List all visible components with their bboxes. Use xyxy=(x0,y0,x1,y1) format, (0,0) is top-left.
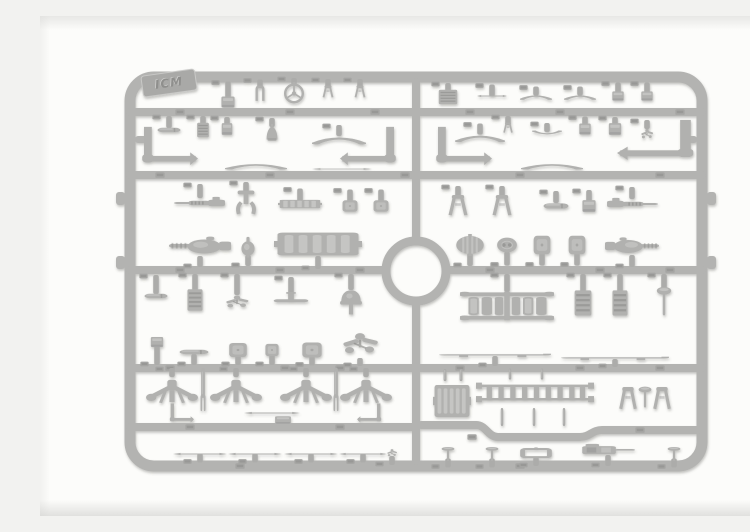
louver-panel xyxy=(612,290,627,315)
number-tab xyxy=(657,464,665,469)
number-tab xyxy=(275,267,284,273)
vent-grille-part xyxy=(439,90,457,104)
number-tab xyxy=(231,263,239,268)
number-tab xyxy=(630,119,638,124)
steering-wheel xyxy=(285,82,303,102)
shift-lever-part xyxy=(657,287,671,316)
junction-box xyxy=(222,123,233,135)
tank-cylinder-part xyxy=(544,203,569,208)
louver-panel xyxy=(197,123,209,137)
bent-pipe-part xyxy=(436,127,492,165)
bent-pipe xyxy=(617,120,693,160)
number-tab xyxy=(635,427,644,433)
tee-valve xyxy=(668,447,681,461)
muffler-part xyxy=(180,350,209,354)
fender-arm xyxy=(494,195,510,215)
number-tab xyxy=(139,274,147,279)
pump-body xyxy=(144,294,167,298)
number-tab xyxy=(343,78,351,83)
junction-box-part xyxy=(222,123,233,135)
frame-bracket-part xyxy=(523,447,550,457)
number-tab xyxy=(560,262,568,267)
number-tab xyxy=(490,262,498,267)
linkage-cluster xyxy=(226,296,249,308)
gun-breech-part xyxy=(582,444,635,454)
cylinder-device xyxy=(157,128,180,132)
hatch-disc-part xyxy=(241,237,254,258)
number-tab xyxy=(431,464,439,469)
gate xyxy=(501,408,504,426)
number-tab xyxy=(243,78,251,83)
small-block-part xyxy=(612,91,623,100)
number-tab xyxy=(294,459,302,464)
clamp-fork xyxy=(655,387,670,409)
fork-post xyxy=(200,368,205,411)
hatch-plate xyxy=(229,343,247,357)
sprue-gate xyxy=(192,274,198,291)
armor-plate xyxy=(569,236,586,254)
sprue-gate xyxy=(489,85,495,97)
grip-cluster-part xyxy=(387,449,397,456)
muffler xyxy=(180,350,209,354)
number-tab xyxy=(591,463,599,468)
sprue-gate xyxy=(661,274,667,289)
sprue-gate xyxy=(191,354,197,365)
sprue-gate xyxy=(644,120,650,129)
number-tab xyxy=(295,362,303,367)
gate xyxy=(444,369,447,381)
number-tab xyxy=(322,124,330,129)
number-tab xyxy=(238,459,246,464)
number-tab xyxy=(183,459,191,464)
linkage-cluster-part xyxy=(226,296,249,308)
small-block xyxy=(612,91,623,100)
curved-brace xyxy=(520,96,553,100)
number-tab xyxy=(525,262,533,267)
sprue-gate xyxy=(629,187,635,199)
sprue-gate xyxy=(539,253,545,266)
number-tab xyxy=(539,190,547,195)
sprue-gate xyxy=(308,454,314,463)
ribbed-barrel-part xyxy=(456,234,484,256)
gun-turret xyxy=(169,237,231,254)
number-tab xyxy=(595,267,604,273)
louver-panel xyxy=(575,290,592,315)
sprue-gate xyxy=(612,359,618,367)
lever-fork-part xyxy=(356,86,365,98)
pedal-box-part xyxy=(275,416,291,424)
bent-pipe xyxy=(436,127,492,165)
number-tab xyxy=(221,362,229,367)
gun-breech xyxy=(582,444,635,454)
sprue-gate xyxy=(477,124,483,135)
number-tab xyxy=(647,273,655,278)
radiator-core xyxy=(458,292,556,321)
machine-gun xyxy=(174,197,225,206)
sprue: ICMICM xyxy=(116,69,716,469)
number-tab xyxy=(277,77,285,82)
number-tab xyxy=(235,463,244,469)
headlamp-bell-part xyxy=(267,124,278,141)
louver-panel xyxy=(187,289,202,311)
number-tab xyxy=(601,81,609,86)
suspension-arm xyxy=(146,380,198,403)
number-tab xyxy=(519,463,527,468)
tee-valve xyxy=(486,447,499,461)
spring-bow-part xyxy=(455,137,506,142)
suspension-arm-part xyxy=(146,380,198,403)
number-tab xyxy=(603,273,611,278)
machine-gun xyxy=(607,198,658,207)
sprue-gate xyxy=(533,87,539,96)
number-tab xyxy=(475,83,483,88)
number-tab xyxy=(475,464,483,469)
gate-part xyxy=(444,369,447,381)
gate xyxy=(533,408,536,426)
sprue-gate xyxy=(315,256,321,269)
stowage-box-part xyxy=(343,200,358,211)
number-tab xyxy=(598,116,606,121)
number-tab xyxy=(289,367,297,372)
gate-part xyxy=(509,369,512,380)
hatch-plate-part xyxy=(265,344,278,356)
sprue-gate xyxy=(336,125,342,136)
spring-bow xyxy=(455,137,506,142)
spring-bow-part xyxy=(311,139,366,145)
number-tab xyxy=(285,109,294,115)
headlamp-bell xyxy=(267,124,278,141)
sprue-gate xyxy=(389,456,395,465)
gate-part xyxy=(460,369,463,381)
louver-panel-part xyxy=(197,123,209,137)
tie-rod xyxy=(312,168,372,170)
sprue-gate xyxy=(166,116,172,128)
number-tab xyxy=(400,172,409,178)
tee-handle xyxy=(639,387,652,408)
step-bracket-part xyxy=(170,403,194,422)
u-clamp-part xyxy=(257,87,264,101)
edge-nub xyxy=(707,256,716,269)
access-ladder-part xyxy=(476,383,594,403)
leaf-spring xyxy=(520,165,583,170)
armor-plate xyxy=(534,236,551,254)
sprue-gate xyxy=(197,454,203,463)
suspension-arm-part xyxy=(210,380,262,403)
radiator-core-part xyxy=(458,292,556,321)
number-tab xyxy=(175,267,184,273)
small-block xyxy=(641,91,652,100)
sprue-gate xyxy=(153,275,159,294)
grip-cluster xyxy=(387,449,397,456)
fork-post-part xyxy=(200,368,205,411)
sprue-gate xyxy=(492,356,498,366)
step-bracket xyxy=(357,403,381,422)
bent-pipe xyxy=(340,127,396,165)
number-tab xyxy=(355,267,364,273)
machine-gun-part xyxy=(607,198,658,207)
sprue-gate xyxy=(303,368,309,377)
number-tab xyxy=(175,109,184,115)
gate-part xyxy=(501,408,504,426)
access-ladder xyxy=(476,383,594,403)
number-tab xyxy=(563,85,571,90)
bent-pipe-part xyxy=(340,127,396,165)
steering-wheel-part xyxy=(285,82,303,102)
gun-turret xyxy=(605,237,659,253)
twin-fork-part xyxy=(504,122,512,132)
sprue-gate xyxy=(348,274,354,290)
sprue-gate xyxy=(233,368,239,377)
number-tab xyxy=(255,362,263,367)
gate xyxy=(460,369,463,381)
hatch-plate xyxy=(302,343,321,358)
number-tab xyxy=(178,273,186,278)
step-bracket xyxy=(170,403,194,422)
small-block-part xyxy=(641,91,652,100)
number-tab xyxy=(568,115,576,120)
number-tab xyxy=(140,362,148,367)
leaf-spring-part xyxy=(520,165,583,170)
mg-mount-cluster-part xyxy=(343,333,379,353)
number-tab xyxy=(283,187,291,192)
sprue-gate xyxy=(544,123,550,132)
fork-post xyxy=(333,368,338,411)
mg-mount-cluster xyxy=(343,333,379,353)
vent-grille xyxy=(439,90,457,104)
number-tab xyxy=(334,273,342,278)
track-links xyxy=(278,200,322,208)
clamp-fork-part xyxy=(655,387,670,409)
firewall-grille xyxy=(433,385,471,417)
number-tab xyxy=(431,82,439,87)
number-tab xyxy=(615,264,623,269)
bent-pipe-part xyxy=(617,120,693,160)
number-tab xyxy=(183,183,191,188)
small-bracket-part xyxy=(221,97,234,108)
tie-rod-part xyxy=(312,168,372,170)
gearbox-part xyxy=(497,238,517,253)
gate-part xyxy=(541,369,544,380)
number-tab xyxy=(219,367,227,372)
sprue-gate xyxy=(154,345,160,365)
ribbed-barrel xyxy=(456,234,484,256)
linkage-cluster-part xyxy=(641,129,653,138)
tee-valve xyxy=(442,447,455,461)
air-funnel-part xyxy=(340,290,362,314)
number-tab xyxy=(598,364,606,369)
gun-turret-part xyxy=(605,237,659,253)
sprue-gate xyxy=(504,252,510,266)
center-ring xyxy=(386,241,446,301)
number-tab xyxy=(555,109,564,115)
gate-part xyxy=(563,408,566,426)
gate xyxy=(541,369,544,380)
small-block-part xyxy=(151,337,163,347)
number-tab xyxy=(655,172,664,178)
sprue-gate xyxy=(363,368,369,377)
suspension-arm xyxy=(210,380,262,403)
sprue-gate xyxy=(360,454,366,463)
number-tab xyxy=(615,186,623,191)
number-tab xyxy=(375,462,383,467)
curved-brace xyxy=(564,96,597,100)
sprue-scene: ICMICM xyxy=(40,16,750,516)
sprue-gate xyxy=(197,184,203,198)
machine-gun-part xyxy=(174,197,225,206)
small-block-part xyxy=(579,124,590,135)
bent-pipe-part xyxy=(142,127,198,165)
edge-nub xyxy=(116,192,125,205)
valve-block-part xyxy=(582,200,595,212)
number-tab xyxy=(575,365,584,371)
number-tab xyxy=(185,424,194,430)
valve-block xyxy=(582,200,595,212)
number-tab xyxy=(485,267,494,273)
stowage-box-part xyxy=(374,200,389,211)
pedal-box xyxy=(275,416,291,424)
fender-arm-part xyxy=(494,195,510,215)
small-block xyxy=(579,124,590,135)
number-tab xyxy=(530,122,538,127)
number-tab xyxy=(467,434,476,440)
edge-nub xyxy=(116,256,125,269)
number-tab xyxy=(515,172,524,178)
sprue-runner xyxy=(421,425,698,437)
number-tab xyxy=(370,109,379,115)
firewall-grille-part xyxy=(433,385,471,417)
hatch-plate-part xyxy=(229,343,247,357)
stowage-box xyxy=(374,200,389,211)
curved-brace-part xyxy=(564,96,597,100)
number-tab xyxy=(229,181,237,186)
axle-tee-part xyxy=(274,292,309,302)
sprue-gate xyxy=(234,274,240,295)
tee-handle-part xyxy=(639,387,652,408)
track-links-part xyxy=(278,200,322,208)
sprue-gate xyxy=(357,358,363,366)
lever-fork xyxy=(324,86,333,98)
gate xyxy=(563,408,566,426)
tank-cylinder xyxy=(544,203,569,208)
armor-plate-part xyxy=(569,236,586,254)
engine-block xyxy=(274,233,362,256)
gearbox xyxy=(497,238,517,253)
sprue-photo: Grey injection-moulded plastic model kit… xyxy=(40,16,750,516)
small-bracket xyxy=(221,97,234,108)
clamp-fork xyxy=(621,387,636,409)
suspension-arm xyxy=(280,380,332,403)
axle-tee xyxy=(274,292,309,302)
armor-plate-part xyxy=(534,236,551,254)
sprue-gate xyxy=(297,189,303,202)
gun-pedestal-part xyxy=(238,191,255,214)
number-tab xyxy=(349,367,357,372)
air-funnel xyxy=(340,290,362,314)
number-tab xyxy=(152,115,160,120)
u-clamp xyxy=(257,87,264,101)
suspension-arm-part xyxy=(280,380,332,403)
curved-brace-part xyxy=(520,96,553,100)
number-tab xyxy=(519,85,527,90)
number-tab xyxy=(210,116,218,121)
louver-panel-part xyxy=(612,290,627,315)
sprue-gate xyxy=(553,191,559,203)
number-tab xyxy=(630,81,638,86)
number-tab xyxy=(183,264,191,269)
small-block xyxy=(151,337,163,347)
suspension-arm-part xyxy=(340,380,392,403)
sprue-gate xyxy=(252,454,258,463)
louver-panel-part xyxy=(187,289,202,311)
number-tab xyxy=(491,115,499,120)
cylinder-device-part xyxy=(157,128,180,132)
stowage-box xyxy=(343,200,358,211)
number-tab xyxy=(177,362,185,367)
twin-fork xyxy=(504,122,512,132)
sprue-gate xyxy=(605,455,611,466)
frame-bracket xyxy=(523,447,550,457)
number-tab xyxy=(274,276,282,281)
sprue-gate xyxy=(574,253,580,266)
fork-post-part xyxy=(333,368,338,411)
number-tab xyxy=(220,273,228,278)
number-tab xyxy=(478,363,486,368)
sprue-gate xyxy=(580,274,586,292)
number-tab xyxy=(280,365,289,371)
sprue-gate xyxy=(577,87,583,96)
sprue-gate xyxy=(533,457,539,466)
number-tab xyxy=(463,122,471,127)
number-tab xyxy=(572,189,580,194)
suspension-arm xyxy=(340,380,392,403)
number-tab xyxy=(211,80,219,85)
number-tab xyxy=(255,117,263,122)
number-tab xyxy=(311,78,319,83)
step-bracket-part xyxy=(357,403,381,422)
leaf-spring-part xyxy=(224,165,287,170)
number-tab xyxy=(465,109,474,115)
gate xyxy=(509,369,512,380)
tee-valve-part xyxy=(442,447,455,461)
leaf-spring xyxy=(224,165,287,170)
fender-arm-part xyxy=(450,195,466,215)
number-tab xyxy=(301,266,309,271)
hatch-plate-part xyxy=(302,343,321,358)
sprue-gate xyxy=(197,256,203,267)
foot-board xyxy=(244,412,300,414)
number-tab xyxy=(155,367,163,372)
number-tab xyxy=(566,273,574,278)
number-tab xyxy=(655,365,664,371)
gun-turret-part xyxy=(169,237,231,254)
number-tab xyxy=(453,263,461,268)
hatch-plate xyxy=(265,344,278,356)
number-tab xyxy=(186,115,194,120)
clamp-fork-part xyxy=(621,387,636,409)
shift-lever xyxy=(657,287,671,316)
sprue-gate xyxy=(169,368,175,377)
bent-pipe xyxy=(142,127,198,165)
gate-part xyxy=(533,408,536,426)
number-tab xyxy=(346,459,354,464)
linkage-cluster xyxy=(641,129,653,138)
number-tab xyxy=(155,172,164,178)
number-tab xyxy=(665,267,674,273)
number-tab xyxy=(333,188,341,193)
number-tab xyxy=(335,424,344,430)
lever-fork xyxy=(356,86,365,98)
small-block-part xyxy=(609,123,621,135)
